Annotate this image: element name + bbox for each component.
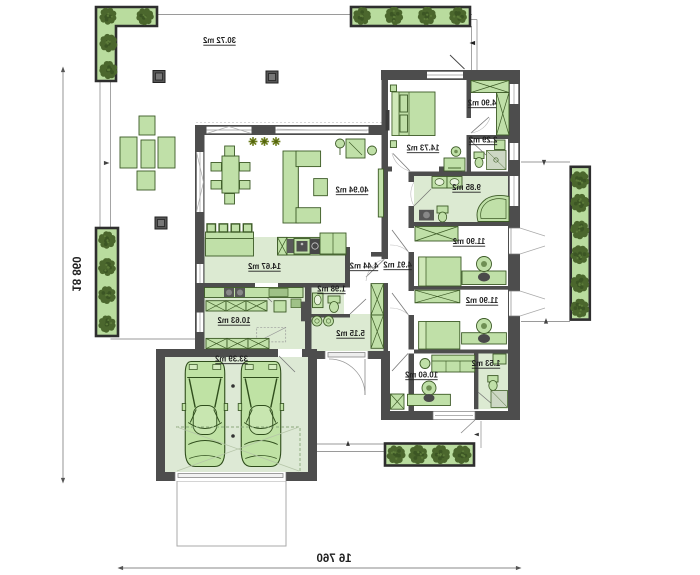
svg-text:30.72 m2: 30.72 m2: [202, 36, 236, 45]
svg-text:4.44 m2: 4.44 m2: [349, 262, 378, 271]
svg-text:14.67 m2: 14.67 m2: [247, 262, 281, 271]
svg-text:2.29 m2: 2.29 m2: [468, 136, 497, 145]
svg-text:11.90 m2: 11.90 m2: [465, 296, 498, 305]
svg-text:4.91 m2: 4.91 m2: [383, 261, 412, 270]
svg-text:1.53 m2: 1.53 m2: [471, 359, 500, 368]
svg-text:4.90 m2: 4.90 m2: [467, 99, 496, 108]
svg-text:5.15 m2: 5.15 m2: [336, 329, 365, 338]
svg-text:10.60 m2: 10.60 m2: [404, 371, 438, 380]
svg-text:10.63 m2: 10.63 m2: [217, 316, 251, 325]
svg-text:16 760: 16 760: [316, 553, 351, 565]
svg-text:1.98 m2: 1.98 m2: [317, 285, 346, 294]
svg-text:11.90 m2: 11.90 m2: [452, 237, 485, 246]
svg-text:33.39 m2: 33.39 m2: [214, 355, 248, 364]
svg-text:18 860: 18 860: [70, 256, 82, 291]
svg-text:14.73 m2: 14.73 m2: [406, 144, 440, 153]
svg-text:40.94 m2: 40.94 m2: [335, 186, 369, 195]
svg-text:9.85 m2: 9.85 m2: [452, 183, 481, 192]
